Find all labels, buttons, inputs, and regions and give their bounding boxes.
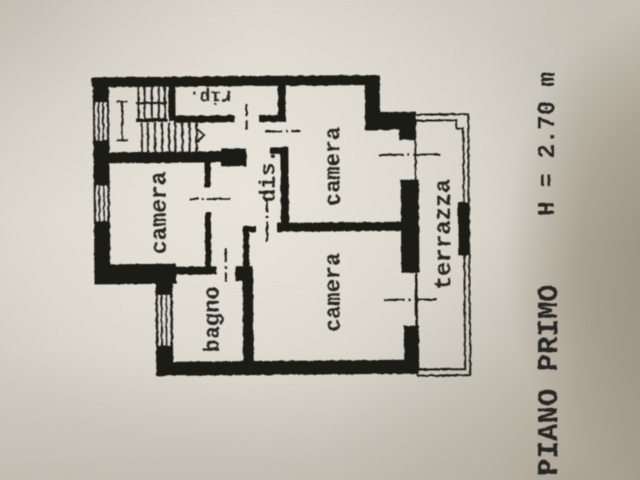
- svg-text:bagno: bagno: [201, 286, 227, 352]
- svg-text:camera: camera: [321, 253, 347, 332]
- svg-text:camera: camera: [321, 127, 347, 206]
- svg-text:terrazza: terrazza: [431, 179, 458, 290]
- svg-text:camera: camera: [147, 171, 174, 254]
- svg-text:rip.: rip.: [189, 85, 232, 105]
- svg-text:PIANO PRIMO: PIANO PRIMO: [533, 284, 566, 475]
- svg-text:dis.: dis.: [256, 149, 281, 202]
- svg-text:H = 2.70 m: H = 2.70 m: [535, 72, 562, 216]
